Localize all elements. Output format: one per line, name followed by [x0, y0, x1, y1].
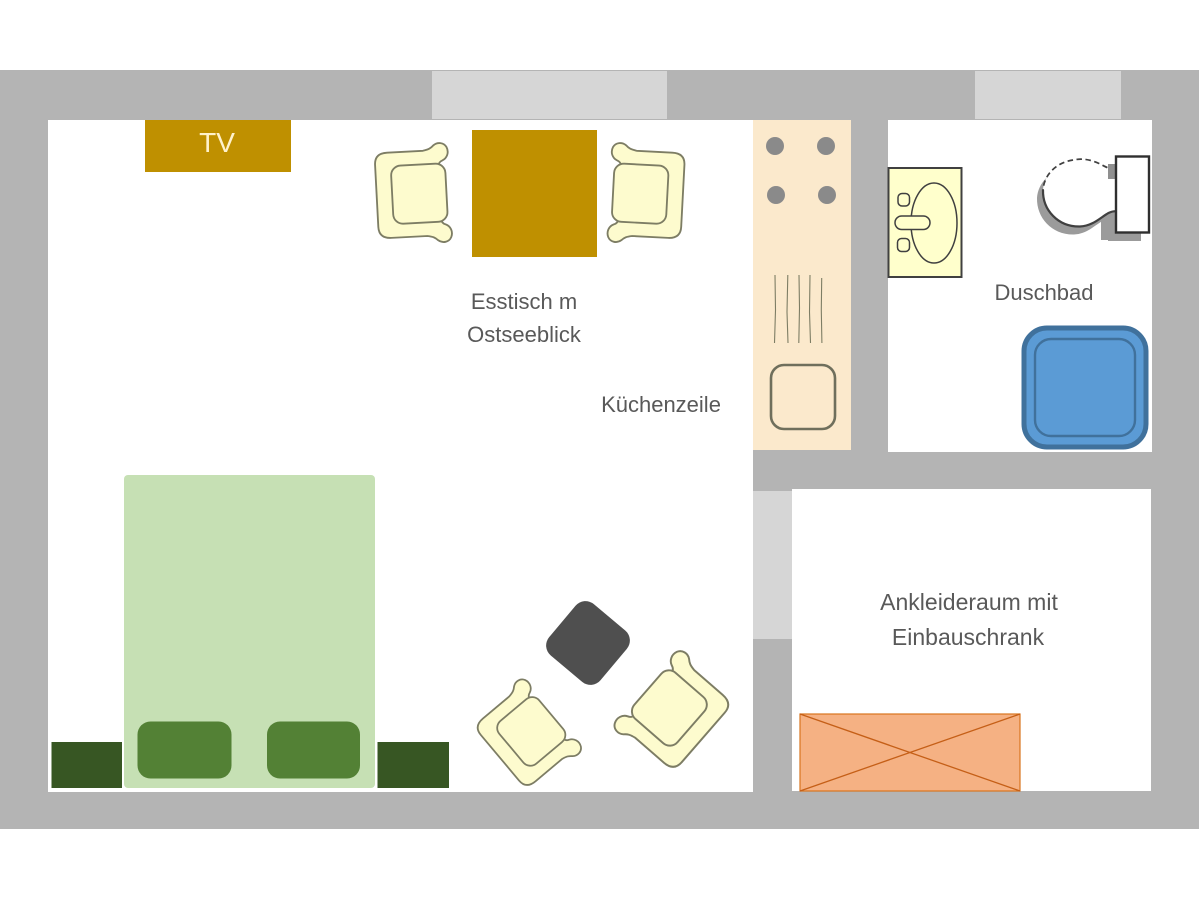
- svg-text:Ostseeblick: Ostseeblick: [467, 322, 582, 347]
- svg-text:Einbauschrank: Einbauschrank: [892, 624, 1045, 650]
- svg-text:TV: TV: [199, 127, 235, 158]
- svg-text:Küchenzeile: Küchenzeile: [601, 392, 721, 417]
- svg-text:Duschbad: Duschbad: [994, 280, 1093, 305]
- svg-text:Esstisch m: Esstisch m: [471, 289, 577, 314]
- svg-text:Ankleideraum mit: Ankleideraum mit: [880, 589, 1058, 615]
